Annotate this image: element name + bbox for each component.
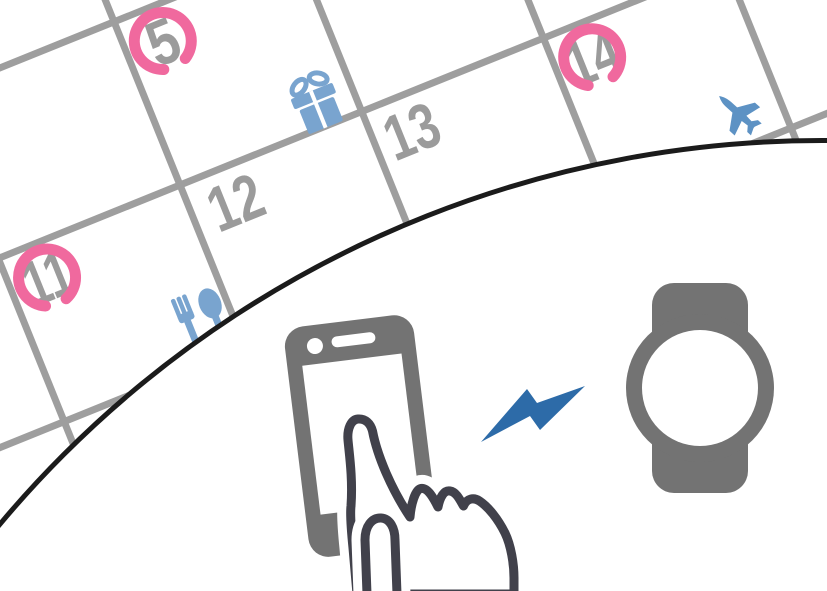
lightning-bolt-icon	[481, 386, 585, 442]
touch-hand-icon	[348, 419, 514, 591]
watch-face	[642, 330, 758, 446]
smartwatch-icon	[626, 283, 774, 493]
foreground-devices	[0, 0, 827, 591]
thumb	[365, 518, 397, 591]
calendar-sync-illustration: 5 11 12 13 14	[0, 0, 827, 591]
